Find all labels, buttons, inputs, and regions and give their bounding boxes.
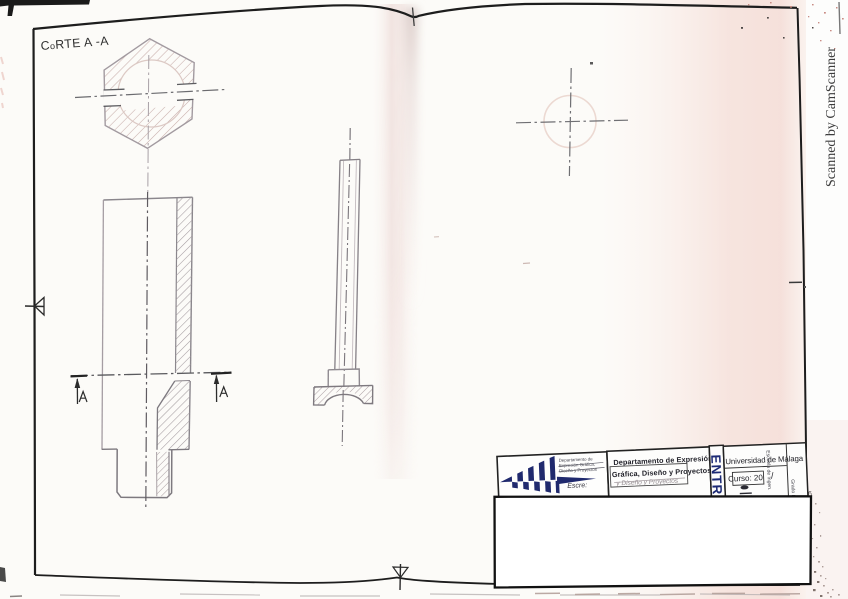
svg-text:ENTR: ENTR — [708, 454, 725, 495]
svg-text:Escre:: Escre: — [567, 482, 587, 490]
svg-text:Curso: 20: Curso: 20 — [728, 473, 764, 484]
svg-text:6: 6 — [808, 491, 812, 498]
svg-text:Scanned by CamScanner: Scanned by CamScanner — [824, 47, 839, 187]
